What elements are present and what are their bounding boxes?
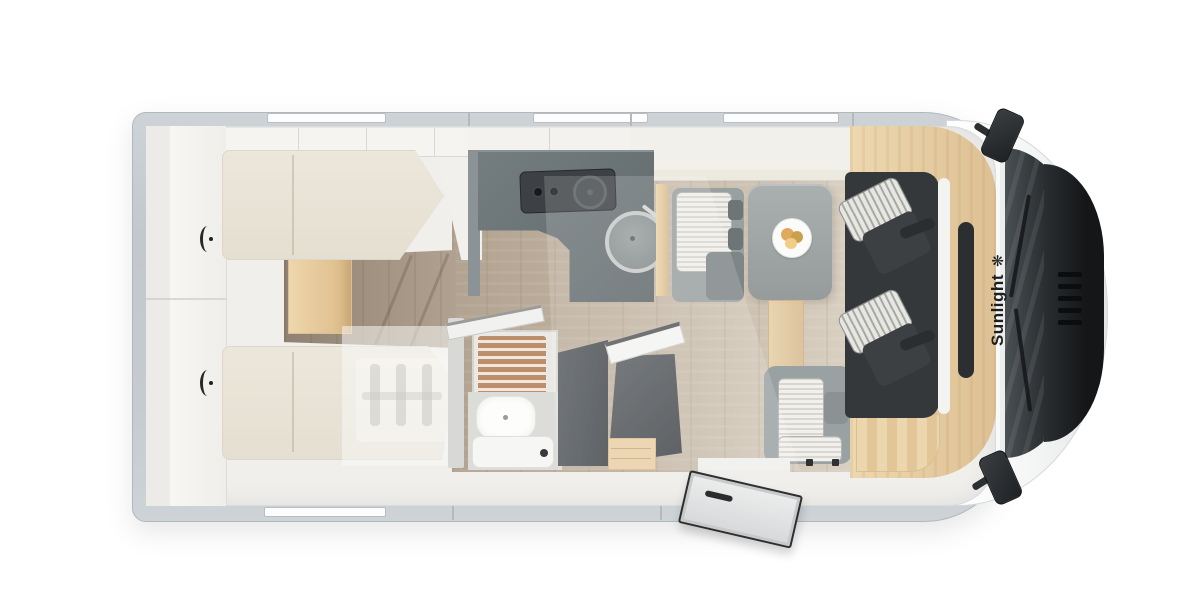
grille-slat [1058, 296, 1082, 301]
bench-headrest [728, 200, 743, 220]
cab-white-sill [938, 178, 950, 414]
locker-divider [434, 128, 435, 156]
single-bed-top [222, 150, 444, 260]
brand-logo: Sunlight ❋ [986, 230, 1010, 370]
brand-name: Sunlight [988, 274, 1008, 346]
door-hinge [832, 459, 839, 466]
window-top-3 [723, 113, 839, 123]
rear-wall-shelf [146, 126, 171, 506]
burner-icon [572, 175, 607, 210]
motorhome-floorplan: Sunlight ❋ [0, 0, 1200, 600]
wood-drawer-chest [608, 438, 656, 470]
wall-seam [660, 506, 662, 520]
wardrobe-handle-icon [200, 370, 215, 396]
hob-knob [533, 187, 543, 197]
wall-seam [852, 112, 854, 126]
hood [1044, 164, 1104, 442]
bed-seam [292, 352, 294, 452]
drawer-line [611, 448, 651, 449]
door-hinge [806, 459, 813, 466]
entry-wood-mat [856, 414, 940, 472]
wall-seam [452, 506, 454, 520]
door-threshold [698, 458, 790, 472]
handle-dot [209, 237, 213, 241]
bed-seam [292, 155, 294, 255]
drawer-line [611, 458, 651, 459]
rear-wardrobe-front [170, 126, 227, 506]
burner-center [587, 189, 593, 195]
door-handle [705, 490, 734, 502]
wall-seam [630, 112, 632, 126]
plate-with-food-icon [772, 218, 812, 258]
bench-headrest [728, 228, 743, 250]
shower-wood-grate [478, 336, 546, 396]
hob-icon [519, 168, 616, 213]
hob-knob [549, 186, 559, 196]
bathroom-dark-wardrobe [558, 340, 608, 466]
grille-slat [1058, 272, 1082, 277]
bench-corner-pad [706, 252, 744, 300]
sink-drain [630, 236, 635, 241]
window-bottom-1 [264, 507, 386, 517]
grille-slat [1058, 320, 1082, 325]
wardrobe-handle-icon [200, 226, 215, 252]
grille-slat [1058, 308, 1082, 313]
food-item [785, 238, 797, 249]
dashboard-edge [958, 222, 974, 378]
toilet-flush-button [540, 449, 548, 457]
bedroom-wood-step [288, 258, 352, 334]
handle-dot [209, 381, 213, 385]
bench-cushion-striped [778, 378, 824, 444]
rear-shelf-divider [146, 298, 170, 300]
rear-wardrobe-divider [170, 298, 226, 300]
grille-slat [1058, 284, 1082, 289]
partition-wall [448, 318, 464, 468]
window-top-1 [267, 113, 386, 123]
brand-logo-icon: ❋ [989, 254, 1007, 267]
wall-seam [468, 112, 470, 126]
wood-pillar [656, 184, 668, 296]
overhead-lockers-dinette [630, 128, 852, 181]
basin-drain [503, 415, 508, 420]
frosted-partition-panel [342, 326, 456, 466]
table-pedestal [768, 300, 804, 372]
